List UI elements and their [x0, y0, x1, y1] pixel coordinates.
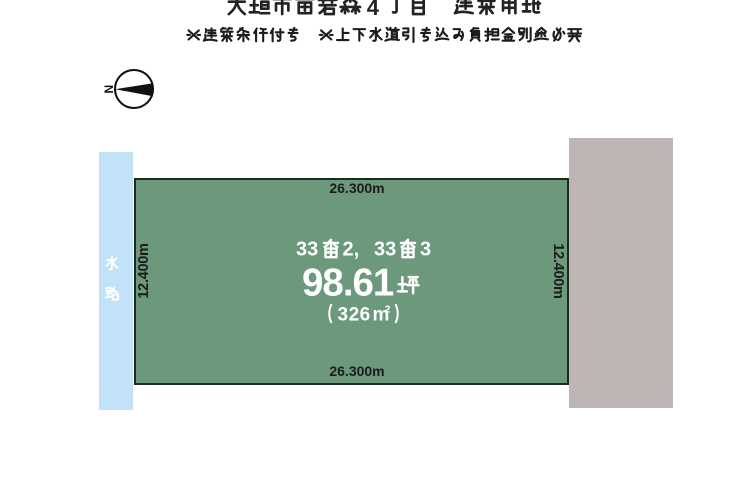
svg-text:3: 3: [420, 238, 431, 260]
svg-text:326: 326: [338, 304, 371, 325]
svg-text:33: 33: [296, 238, 318, 260]
svg-text:98.61: 98.61: [302, 262, 394, 305]
svg-text:2,: 2,: [343, 238, 360, 260]
svg-text:2: 2: [385, 305, 391, 316]
svg-text:33: 33: [374, 238, 396, 260]
